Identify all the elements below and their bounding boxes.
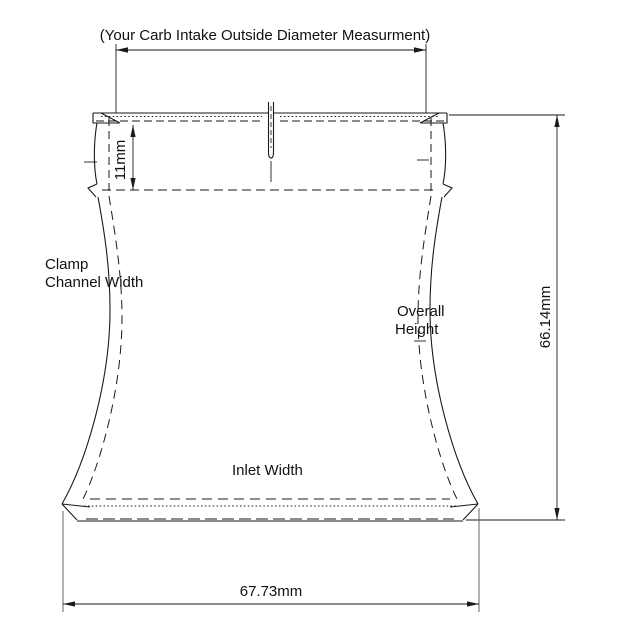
body-bore-hidden-right: [418, 196, 457, 499]
dimension-arrow: [414, 47, 426, 52]
base-right-chamfer: [463, 504, 478, 520]
base-top-edge-right: [450, 504, 478, 507]
dimension-arrow: [63, 601, 75, 606]
clamp-left-wall: [94, 123, 97, 184]
overall-height-dimension: [449, 115, 565, 520]
base-outline: [62, 499, 478, 521]
dimension-arrow: [130, 125, 135, 137]
dimension-arrow: [554, 115, 559, 127]
clamp-right-wall: [443, 123, 446, 184]
clamp-left-ledge: [88, 184, 97, 197]
base-left-chamfer: [62, 504, 77, 520]
dimension-arrow: [116, 47, 128, 52]
body-bore-hidden-left: [83, 196, 122, 499]
clamp-right-ledge: [443, 184, 452, 197]
base-top-edge-left: [62, 504, 90, 507]
adapter-section-drawing: [0, 0, 640, 640]
body-profile: [62, 196, 478, 504]
body-outer-left: [62, 197, 110, 504]
top-diameter-dimension: [116, 44, 426, 113]
dimension-arrow: [467, 601, 479, 606]
clamp-depth-dimension: [130, 125, 135, 190]
technical-drawing-canvas: (Your Carb Intake Outside Diameter Measu…: [0, 0, 640, 640]
clamp-slot: [269, 102, 274, 182]
dimension-arrow: [130, 178, 135, 190]
dimension-arrow: [554, 508, 559, 520]
body-outer-right: [430, 197, 478, 504]
inlet-width-dimension: [63, 508, 479, 612]
